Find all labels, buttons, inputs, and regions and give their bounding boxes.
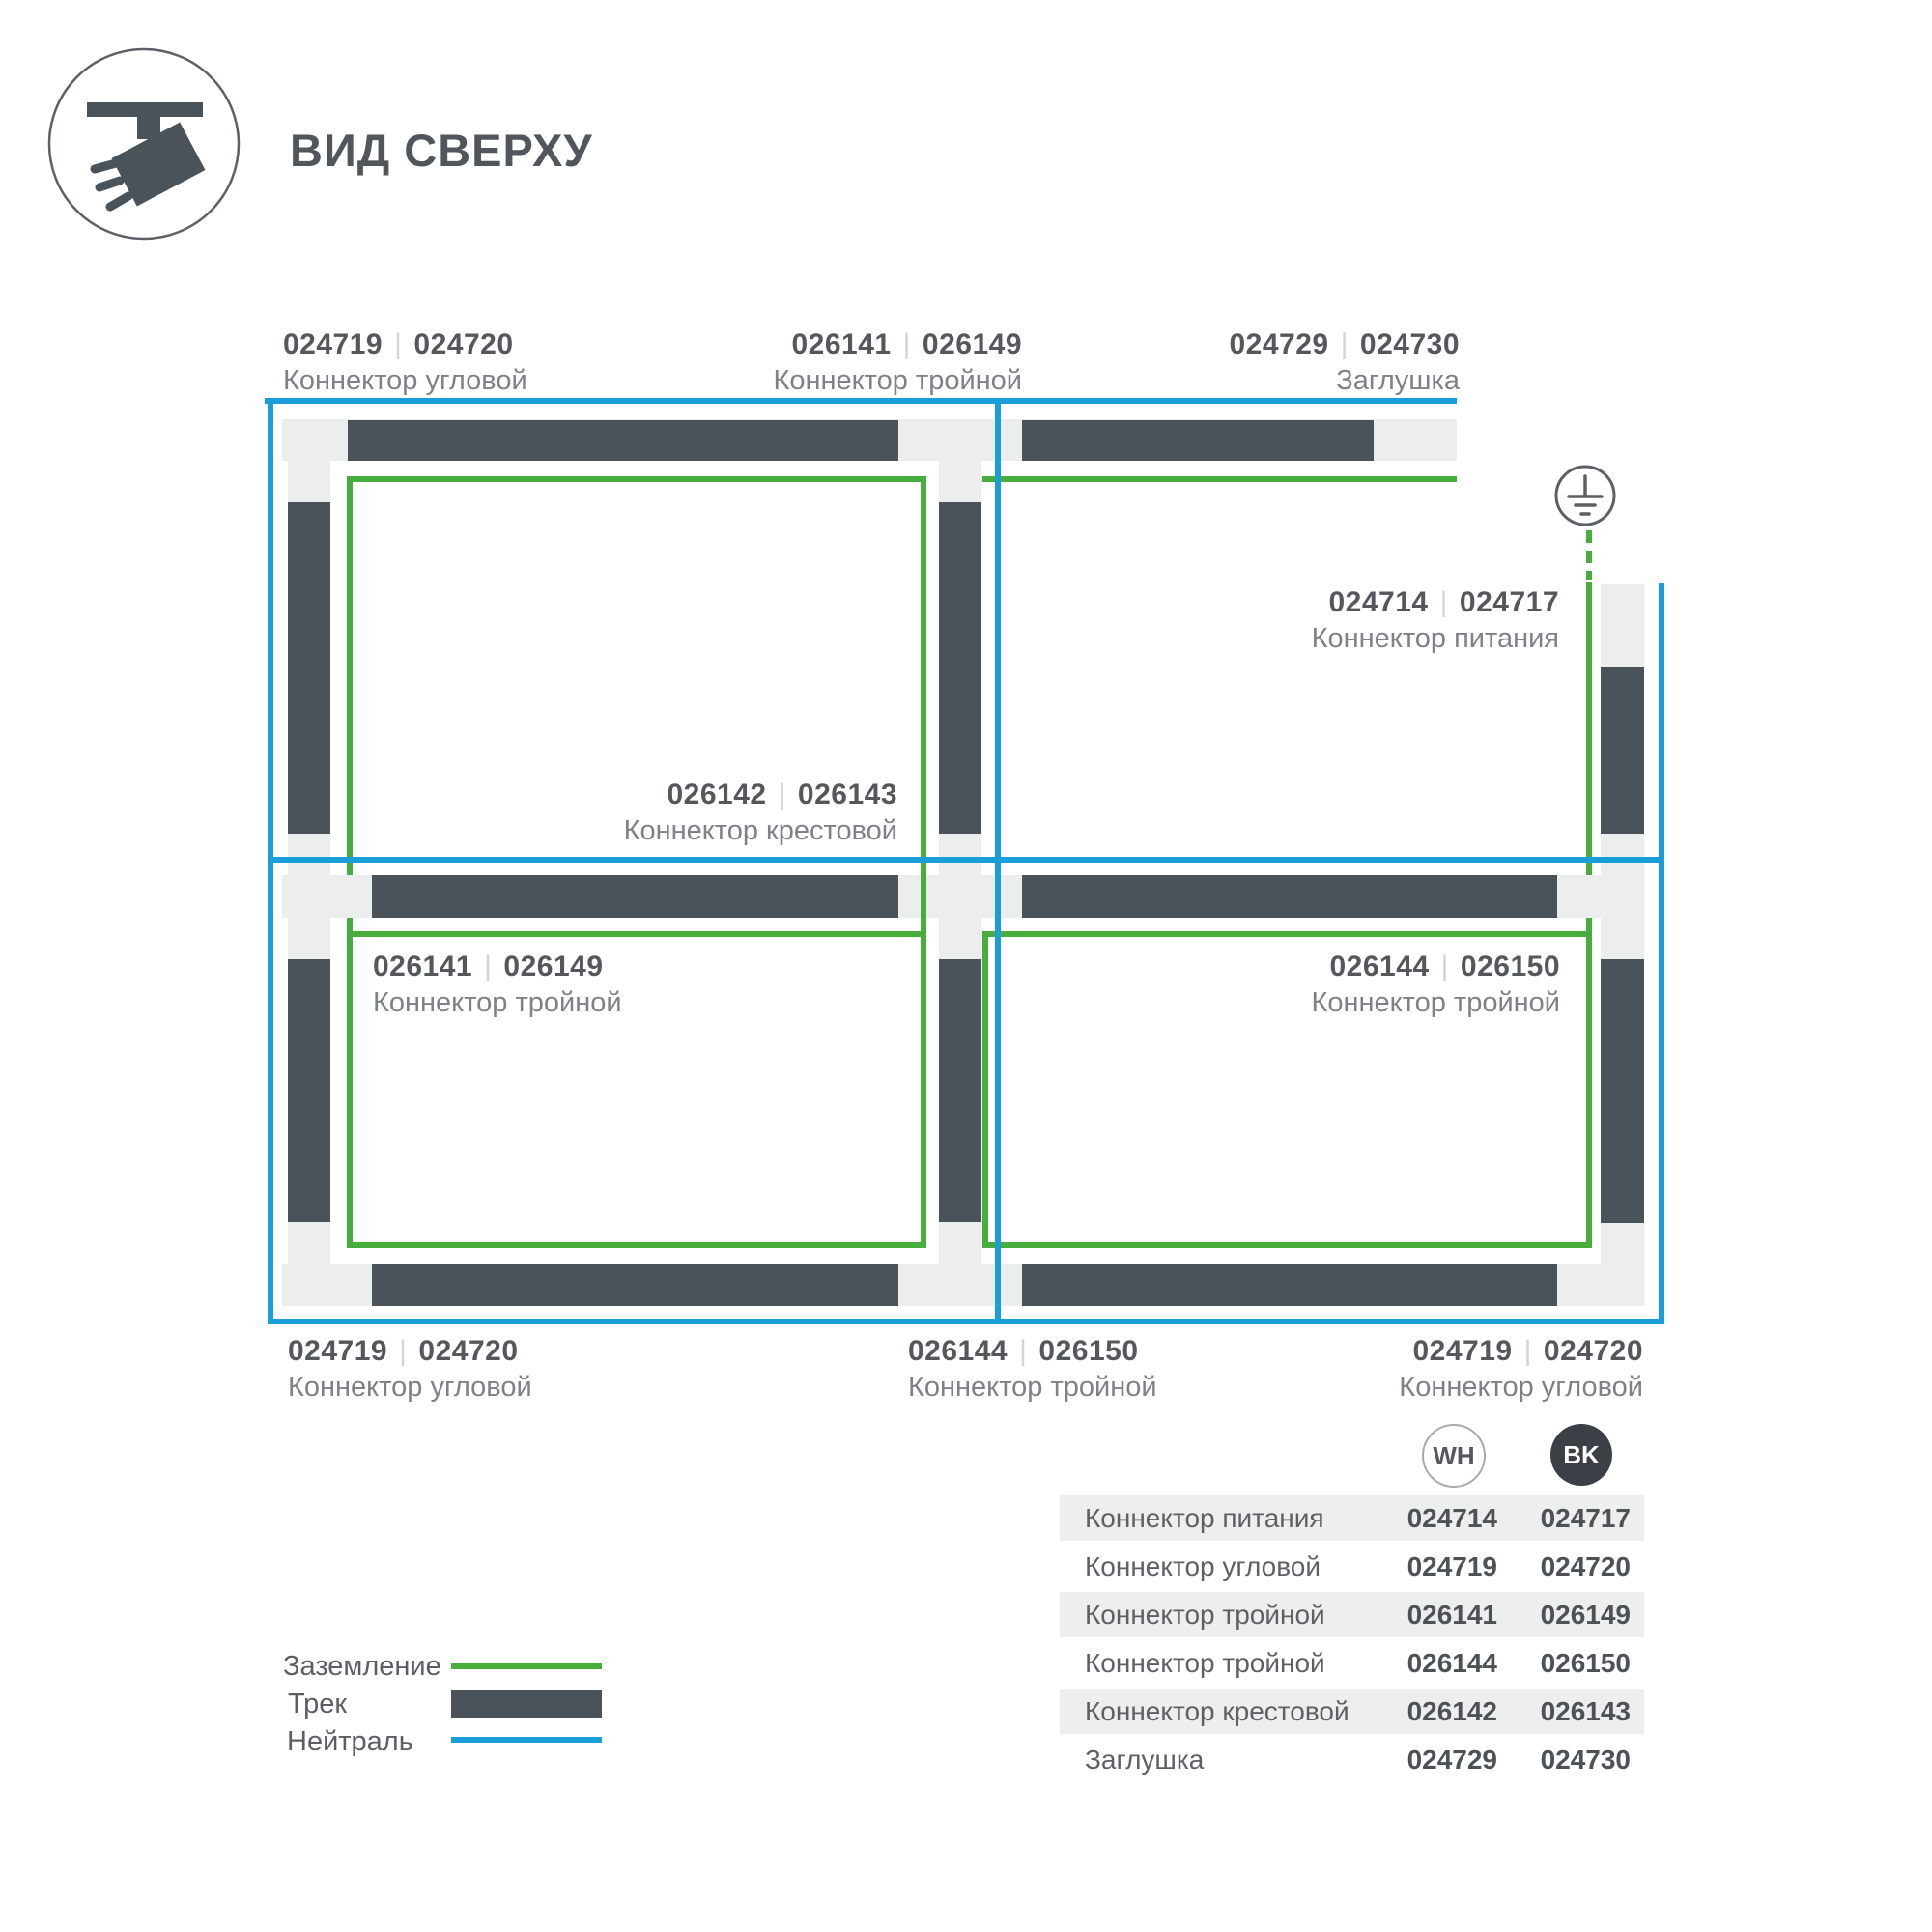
part-name: Коннектор тройной: [773, 365, 1022, 397]
track-segment: [1601, 959, 1644, 1223]
track-segment: [1022, 420, 1374, 461]
label-corner-connector-bottom-right: 024719|024720 Коннектор угловой: [1399, 1335, 1643, 1404]
ground-line: [982, 1242, 1592, 1248]
part-name: Коннектор тройной: [373, 987, 622, 1019]
part-name: Коннектор тройной: [1311, 987, 1560, 1019]
track-spotlight-icon: [46, 46, 241, 241]
table-row: Коннектор питания 024714 024717: [1060, 1495, 1644, 1541]
part-codes: 024714|024717: [1312, 586, 1559, 619]
part-name: Коннектор крестовой: [624, 815, 897, 847]
ground-line-dash: [1586, 571, 1592, 580]
table-row: Коннектор крестовой 026142 026143: [1060, 1689, 1644, 1734]
table-row: Заглушка 024729 024730: [1060, 1737, 1644, 1782]
part-name-cell: Заглушка: [1060, 1745, 1372, 1776]
part-name: Коннектор угловой: [1399, 1372, 1643, 1404]
part-codes: 026141|026149: [773, 328, 1022, 361]
part-codes: 026144|026150: [908, 1335, 1157, 1368]
label-end-cap: 024729|024730 Заглушка: [1229, 328, 1460, 397]
ground-line: [982, 931, 988, 1248]
label-triple-connector-middle-left: 026141|026149 Коннектор тройной: [373, 951, 622, 1019]
part-name: Заглушка: [1229, 365, 1460, 397]
color-badge-black: BK: [1550, 1424, 1612, 1486]
ground-line: [347, 918, 353, 1248]
part-codes: 024719|024720: [283, 328, 527, 361]
label-triple-connector-bottom: 026144|026150 Коннектор тройной: [908, 1335, 1157, 1404]
track-segment: [1022, 875, 1557, 918]
part-code-bk-cell: 026150: [1497, 1648, 1631, 1679]
ground-line: [347, 476, 923, 482]
part-code-bk-cell: 026149: [1497, 1600, 1631, 1631]
top-view-schematic-page: ВИД СВЕРХУ: [0, 0, 1932, 1932]
part-name-cell: Коннектор угловой: [1060, 1551, 1372, 1582]
part-code-bk-cell: 024730: [1497, 1745, 1631, 1776]
ground-line: [347, 931, 926, 937]
table-row: Коннектор угловой 024719 024720: [1060, 1544, 1644, 1589]
part-name: Коннектор угловой: [288, 1372, 532, 1404]
label-triple-connector-top: 026141|026149 Коннектор тройной: [773, 328, 1022, 397]
part-name-cell: Коннектор тройной: [1060, 1600, 1372, 1631]
ground-line: [347, 476, 353, 875]
track-segment: [348, 420, 898, 461]
track-segment: [372, 1264, 898, 1306]
part-codes: 024719|024720: [1399, 1335, 1643, 1368]
legend-label-neutral: Нейтраль: [287, 1726, 413, 1758]
part-code-wh-cell: 026144: [1372, 1648, 1497, 1679]
ground-line-dash: [1586, 530, 1592, 543]
neutral-line: [995, 398, 1001, 1324]
part-name: Коннектор тройной: [908, 1372, 1157, 1404]
label-power-connector: 024714|024717 Коннектор питания: [1312, 586, 1559, 655]
table-row: Коннектор тройной 026141 026149: [1060, 1592, 1644, 1637]
track-segment: [939, 959, 981, 1222]
ground-line: [347, 1242, 926, 1248]
part-codes: 026144|026150: [1311, 951, 1560, 983]
ground-line: [982, 931, 1592, 937]
part-codes: 024719|024720: [288, 1335, 532, 1368]
track-segment: [1601, 667, 1644, 834]
part-codes: 026142|026143: [624, 779, 897, 811]
label-cross-connector: 026142|026143 Коннектор крестовой: [624, 779, 897, 847]
part-code-wh-cell: 024729: [1372, 1745, 1497, 1776]
page-title: ВИД СВЕРХУ: [290, 124, 593, 177]
ground-line: [1586, 918, 1592, 1248]
part-code-wh-cell: 024719: [1372, 1551, 1497, 1582]
part-name: Коннектор угловой: [283, 365, 527, 397]
part-name-cell: Коннектор питания: [1060, 1503, 1372, 1534]
legend-label-ground: Заземление: [283, 1651, 441, 1683]
legend-swatch-track-bar: [451, 1690, 602, 1718]
neutral-line: [265, 398, 1457, 404]
ground-line: [1586, 582, 1592, 875]
part-code-bk-cell: 026143: [1497, 1696, 1631, 1727]
part-name-cell: Коннектор тройной: [1060, 1648, 1372, 1679]
track-segment: [372, 875, 898, 918]
neutral-line: [268, 1319, 1664, 1324]
parts-table-rows: Коннектор питания 024714 024717 Коннекто…: [1060, 1495, 1644, 1785]
color-badge-white: WH: [1422, 1424, 1486, 1488]
neutral-line: [268, 857, 1664, 863]
legend-label-track: Трек: [288, 1689, 347, 1720]
part-code-wh-cell: 026142: [1372, 1696, 1497, 1727]
legend-swatch-neutral-line: [451, 1737, 602, 1743]
part-codes: 024729|024730: [1229, 328, 1460, 361]
label-corner-connector-top-left: 024719|024720 Коннектор угловой: [283, 328, 527, 397]
ground-line-dash: [1586, 551, 1592, 563]
track-segment: [1022, 1264, 1557, 1306]
part-code-bk-cell: 024717: [1497, 1503, 1631, 1534]
part-code-wh-cell: 026141: [1372, 1600, 1497, 1631]
part-code-wh-cell: 024714: [1372, 1503, 1497, 1534]
track-segment: [939, 502, 981, 834]
neutral-line: [1659, 583, 1664, 1324]
part-codes: 026141|026149: [373, 951, 622, 983]
table-row: Коннектор тройной 026144 026150: [1060, 1640, 1644, 1686]
track-segment: [288, 502, 330, 834]
part-name: Коннектор питания: [1312, 623, 1559, 655]
part-code-bk-cell: 024720: [1497, 1551, 1631, 1582]
ground-line: [982, 476, 1457, 482]
part-name-cell: Коннектор крестовой: [1060, 1696, 1372, 1727]
label-corner-connector-bottom-left: 024719|024720 Коннектор угловой: [288, 1335, 532, 1404]
track-segment: [288, 959, 330, 1222]
earth-ground-icon: [1553, 464, 1617, 527]
legend-swatch-ground-line: [451, 1663, 602, 1669]
label-triple-connector-middle-right: 026144|026150 Коннектор тройной: [1311, 951, 1560, 1019]
